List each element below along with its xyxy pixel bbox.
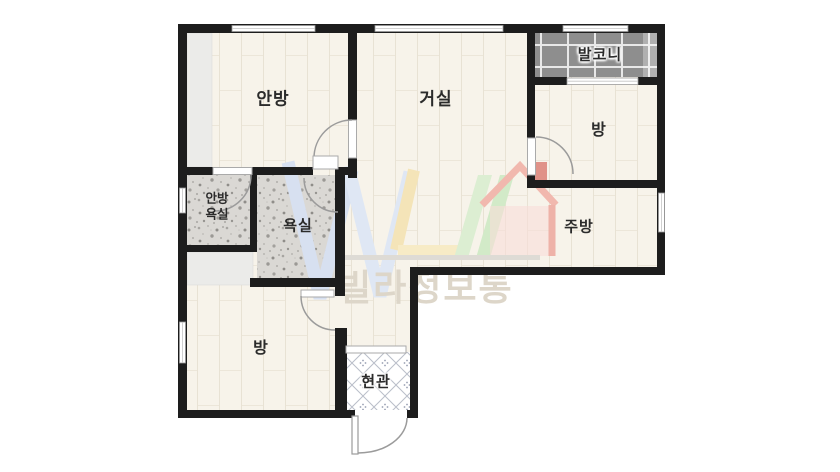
- wall-hall-right: [410, 267, 418, 418]
- window-top-1: [232, 26, 315, 32]
- wall-room-kitchen: [527, 180, 665, 188]
- wall-kitchen-bottom: [410, 267, 665, 275]
- wall-outer-right: [657, 24, 665, 275]
- master-bedroom-door-frame: [349, 120, 357, 158]
- wall-balcony-bottom-1: [535, 77, 567, 85]
- entrance-threshold: [346, 346, 406, 353]
- label-living-room: 거실: [419, 88, 452, 109]
- label-room-lower: 방: [253, 339, 269, 359]
- wall-living-room-upper: [527, 24, 535, 138]
- entrance-door-arc: [358, 418, 407, 453]
- label-master-bathroom: 안방 욕실: [205, 191, 228, 222]
- wall-balcony-bottom-2: [638, 77, 657, 85]
- watermark-house-body: [490, 206, 550, 256]
- wall-bath-top-2: [252, 167, 313, 175]
- label-entrance: 현관: [361, 374, 391, 393]
- floor-plan: 빌라정보통: [0, 0, 840, 472]
- label-balcony: 발코니: [578, 47, 622, 66]
- label-master-bathroom-line2: 욕실: [205, 207, 228, 223]
- balcony-sliding-window: [567, 78, 638, 85]
- window-left-2: [180, 322, 186, 363]
- master-bedroom-closet: [187, 33, 212, 167]
- wall-bath-top-1: [187, 167, 213, 175]
- entrance-door-opening: [355, 410, 407, 418]
- floor-plan-canvas: 빌라정보통: [0, 0, 840, 472]
- bathroom-door-frame: [313, 156, 338, 169]
- window-left-1: [180, 188, 186, 213]
- room-upper-door-frame: [528, 138, 536, 175]
- wall-entrance-left: [335, 328, 347, 418]
- room-lower-door-leaf: [301, 290, 334, 297]
- watermark-underline: [336, 255, 540, 260]
- entrance-door-leaf: [352, 416, 358, 454]
- label-master-bedroom: 안방: [256, 88, 289, 109]
- label-master-bathroom-line1: 안방: [205, 191, 228, 207]
- wall-master-bath-bottom: [178, 245, 257, 252]
- room-lower-closet: [187, 252, 253, 285]
- master-bathroom-door-frame: [213, 168, 252, 175]
- window-top-2: [375, 26, 503, 32]
- label-kitchen: 주방: [564, 219, 594, 238]
- label-room-upper: 방: [591, 121, 607, 141]
- balcony-edge-strip: [643, 33, 657, 77]
- wall-bath-right: [335, 167, 345, 296]
- window-right-1: [659, 193, 665, 232]
- window-top-3: [563, 26, 628, 32]
- wall-bath-bottom: [250, 278, 345, 287]
- label-bathroom: 욕실: [283, 218, 313, 237]
- wall-master-living-upper: [348, 24, 357, 120]
